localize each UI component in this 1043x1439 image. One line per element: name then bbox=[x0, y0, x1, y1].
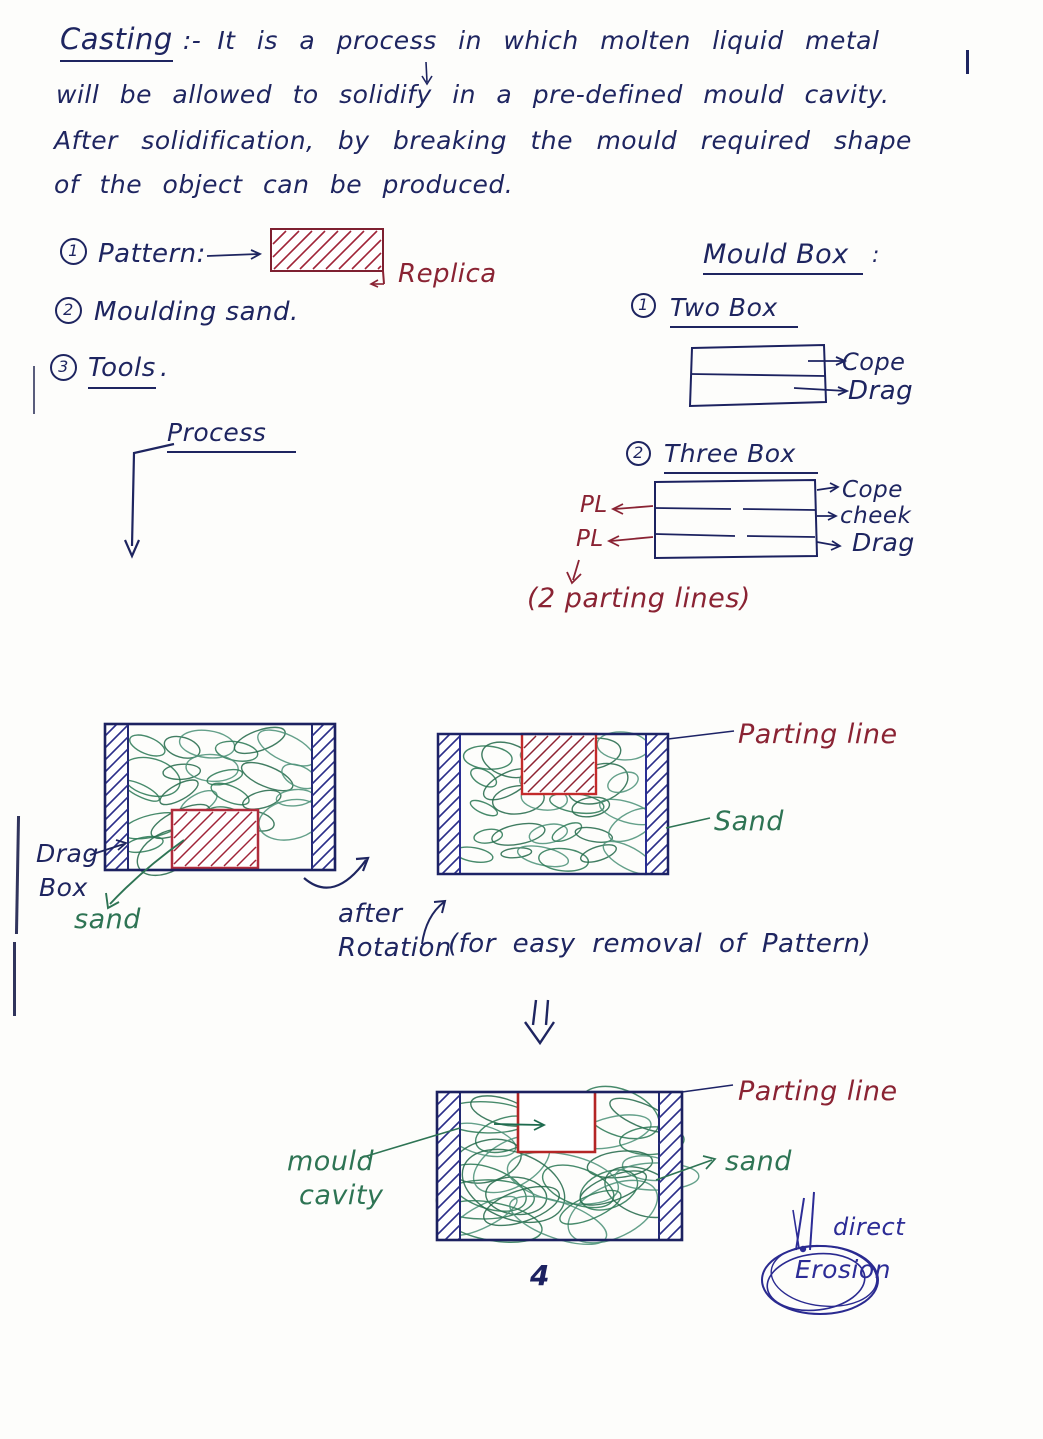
drag-box-diagram bbox=[20, 712, 370, 942]
scribble-ellipse bbox=[490, 820, 547, 849]
scribble-ellipse bbox=[127, 731, 168, 761]
parting-line-1 bbox=[655, 508, 815, 510]
intro-line-3: After solidification, by breaking the mo… bbox=[54, 126, 912, 155]
cavity-arrow bbox=[494, 1124, 542, 1125]
scribble-ellipse bbox=[576, 1164, 650, 1212]
down-caret-icon bbox=[418, 60, 436, 90]
shaft-1 bbox=[533, 1000, 536, 1025]
scribble-ellipse bbox=[231, 722, 288, 759]
intro-text-1: It is a process in which molten liquid m… bbox=[217, 26, 879, 55]
double-down-arrow-icon bbox=[520, 995, 570, 1049]
three-box-outline bbox=[655, 480, 817, 558]
item3-number: 3 bbox=[50, 354, 77, 381]
three-box-label: Three Box bbox=[664, 440, 818, 474]
item2-label: Moulding sand. bbox=[94, 298, 299, 328]
parting-line-leader bbox=[668, 731, 734, 739]
three-box-diagram bbox=[565, 470, 855, 592]
stray-mark bbox=[966, 50, 969, 74]
page-title: Casting bbox=[60, 22, 173, 62]
sand-label: sand bbox=[725, 1146, 792, 1177]
scribble-ellipse bbox=[605, 768, 641, 796]
pl-top-label: PL bbox=[580, 492, 608, 518]
margin-line-2 bbox=[13, 942, 16, 1016]
cavity-label: cavity bbox=[299, 1180, 383, 1211]
item1-label: Pattern: bbox=[98, 240, 206, 270]
scribble-ellipse bbox=[208, 779, 252, 809]
document-body: { "colors": { "ink_navy": "#1e2560", "in… bbox=[0, 0, 1043, 1439]
replica-label: Replica bbox=[398, 260, 497, 290]
process-arrow bbox=[112, 434, 192, 574]
cavity-blank bbox=[518, 1092, 595, 1152]
item3-period: . bbox=[160, 354, 169, 384]
direct-label: direct bbox=[833, 1214, 905, 1242]
pour-stroke-3 bbox=[793, 1210, 799, 1248]
two-box-drag-label: Drag bbox=[848, 377, 913, 407]
intro-line-1: Casting:-It is a process in which molten… bbox=[60, 22, 879, 56]
process-arrow-line bbox=[132, 444, 174, 546]
two-box-parting-line bbox=[691, 374, 825, 376]
erosion-label: Erosion bbox=[795, 1256, 891, 1285]
mould-box-colon: : bbox=[872, 243, 880, 268]
two-box-label: Two Box bbox=[670, 294, 798, 328]
three-box-number: 2 bbox=[626, 441, 651, 466]
page-number: 4 bbox=[530, 1260, 550, 1292]
item2-number: 2 bbox=[55, 297, 82, 324]
parting-line-2 bbox=[655, 534, 815, 537]
mould-label: mould bbox=[287, 1146, 374, 1177]
item1-number: 1 bbox=[60, 238, 87, 265]
box-label: Box bbox=[39, 874, 88, 903]
pl-top-arrow bbox=[615, 506, 653, 509]
two-box-number: 1 bbox=[631, 293, 656, 318]
intro-line-2: will be allowed to solidify in a pre-def… bbox=[56, 80, 889, 109]
replica-connector bbox=[383, 271, 384, 284]
margin-tick bbox=[33, 366, 35, 414]
mould-box-heading: Mould Box bbox=[703, 239, 863, 275]
sand-label: sand bbox=[74, 904, 141, 935]
rotation-note: (for easy removal of Pattern) bbox=[448, 930, 871, 960]
item3-label: Tools bbox=[88, 354, 156, 389]
scribble-ellipse bbox=[579, 841, 619, 866]
parting-line-leader bbox=[682, 1085, 733, 1092]
drag-arrow bbox=[794, 388, 846, 391]
sand-leader bbox=[666, 818, 710, 828]
notebook-page: Casting:-It is a process in which molten… bbox=[0, 0, 1043, 1439]
sand-label: Sand bbox=[714, 806, 784, 837]
scribble-ellipse bbox=[124, 834, 165, 856]
arrow-line bbox=[207, 254, 259, 256]
rotation-word1: after bbox=[338, 900, 402, 930]
two-box-cope-label: Cope bbox=[842, 349, 905, 377]
pour-stroke-1 bbox=[796, 1198, 804, 1250]
three-box-cope-label: Cope bbox=[842, 477, 903, 503]
scribble-ellipse bbox=[178, 727, 236, 761]
parting-line-label: Parting line bbox=[738, 1076, 898, 1107]
mould-box-title: Mould Box bbox=[703, 239, 849, 270]
parting-line-label: Parting line bbox=[738, 719, 898, 750]
margin-line-1 bbox=[15, 816, 20, 934]
pattern-rect bbox=[271, 229, 383, 271]
up-arrow-line bbox=[422, 902, 444, 944]
erosion-doodle bbox=[750, 1186, 920, 1318]
scribble-ellipse bbox=[571, 794, 611, 819]
scribble-ellipse bbox=[501, 847, 532, 859]
shaft-2 bbox=[546, 1000, 548, 1025]
parting-lines-note: (2 parting lines) bbox=[527, 583, 751, 614]
scribble-ellipse bbox=[528, 821, 569, 847]
right-arrow-icon bbox=[205, 247, 267, 263]
pattern-sample-diagram bbox=[268, 226, 398, 290]
intro-line-4: of the object can be produced. bbox=[54, 170, 513, 199]
arrow-head bbox=[525, 1022, 554, 1043]
title-separator: :- bbox=[183, 26, 201, 55]
three-box-cheek-label: cheek bbox=[840, 503, 911, 529]
drag-label: Drag bbox=[36, 840, 99, 869]
caret-line bbox=[426, 62, 427, 82]
pour-stroke-2 bbox=[810, 1192, 814, 1250]
three-box-drag-label: Drag bbox=[852, 529, 915, 558]
pl-bottom-label: PL bbox=[576, 526, 604, 552]
inverted-box-diagram bbox=[428, 722, 744, 888]
